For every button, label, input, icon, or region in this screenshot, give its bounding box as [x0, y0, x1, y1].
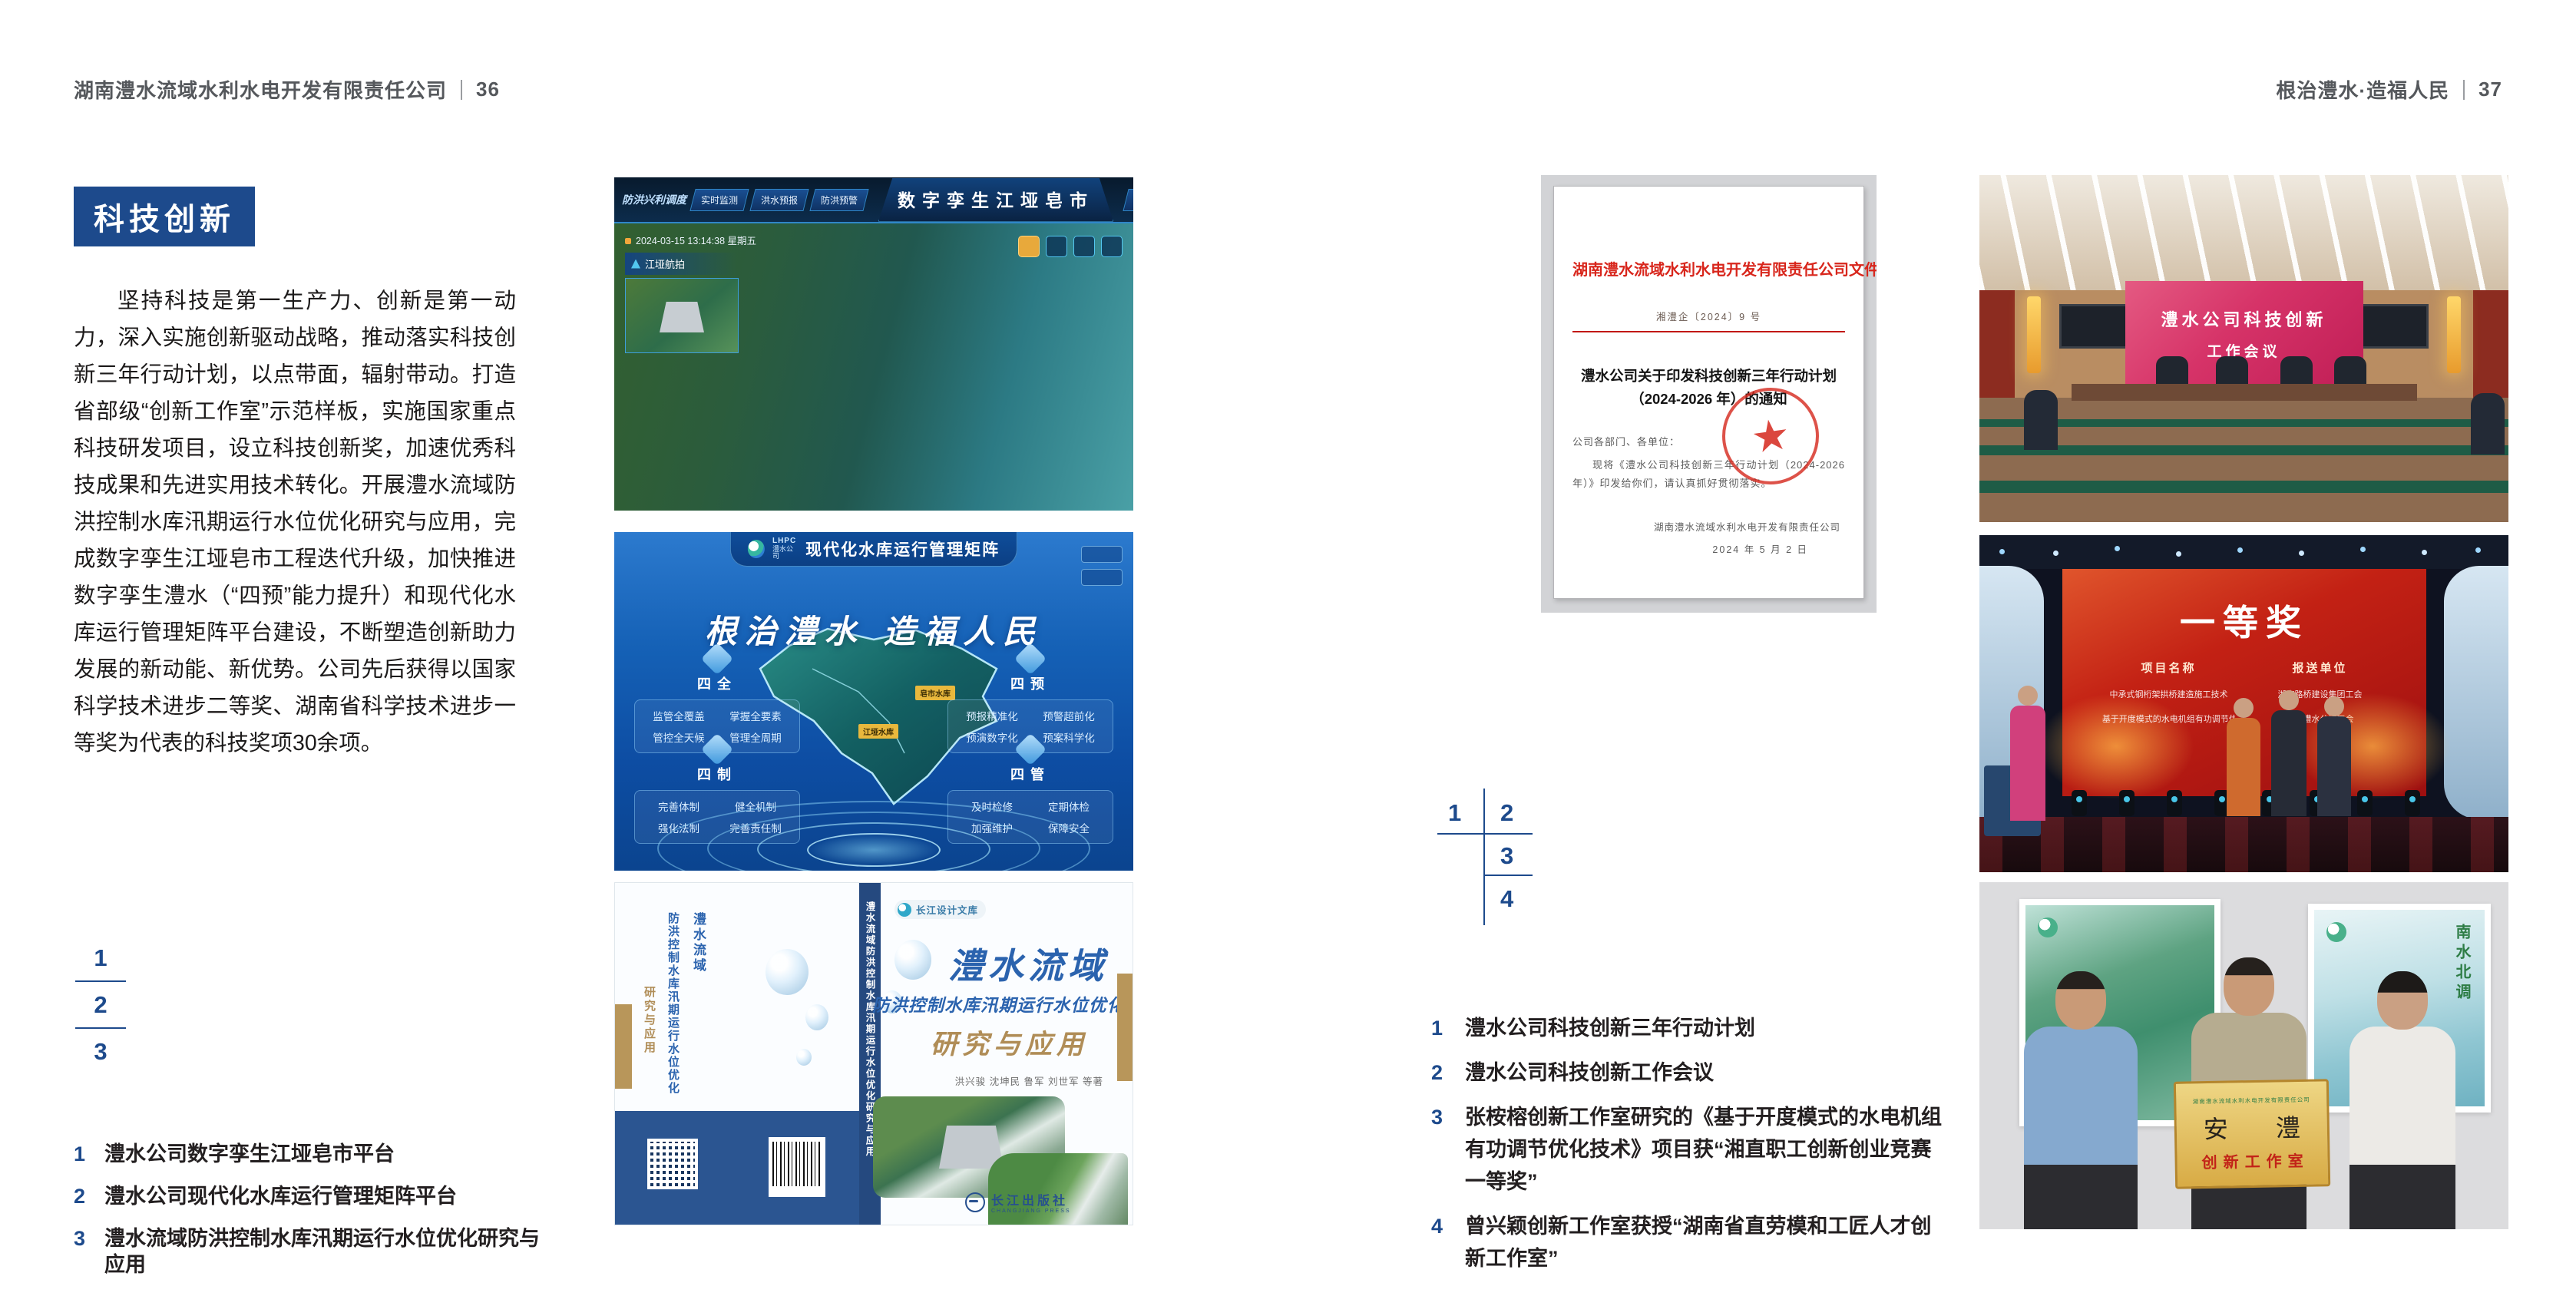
caption-number: 3: [1431, 1101, 1448, 1133]
matrix-button: [1081, 569, 1123, 586]
publisher-logo-icon: [965, 1192, 985, 1212]
panel-icon: [631, 260, 640, 269]
matrix-header: LHPC澧水公司 现代化水库运行管理矩阵: [730, 532, 1017, 567]
wall-lamp: [2447, 296, 2461, 373]
lhpc-logo-icon: [2038, 918, 2058, 937]
caption-number: 4: [1431, 1210, 1448, 1242]
person-silhouette: [2024, 1027, 2138, 1229]
series-logo: 长江设计文库: [894, 900, 986, 919]
twin-tab: 实时监测: [689, 189, 749, 211]
figure-meeting-photo: 澧水公司科技创新 工作会议: [1979, 175, 2508, 522]
water-droplet: [796, 1049, 812, 1066]
twin-menu-label: 防洪兴利调度: [622, 192, 686, 207]
speaker-silhouette: [2334, 356, 2366, 387]
gold-tab: [1117, 974, 1133, 1081]
brochure-spread: 湖南澧水流域水利水电开发有限责任公司 36 根治澧水·造福人民 37 科技创新 …: [0, 0, 2576, 1306]
map-label-jiangya: 江垭水库: [858, 724, 898, 739]
attendee-silhouette: [2471, 393, 2505, 455]
figure-index-number: 3: [94, 1040, 107, 1063]
figure-index-divider: [75, 1027, 126, 1029]
winner-silhouette: [2271, 710, 2306, 816]
caption-number: 3: [74, 1225, 91, 1278]
diamond-icon: [1014, 643, 1047, 675]
back-cover-titles: 研究与应用 防洪控制水库汛期运行水位优化 澧水流域: [641, 912, 708, 1095]
locate-icon: [1073, 236, 1095, 257]
notice-doc-number: 湘澧企〔2024〕9 号: [1572, 309, 1845, 323]
wall-lamp: [2027, 296, 2041, 373]
qr-code: [647, 1139, 698, 1189]
floor-light: [2167, 790, 2182, 816]
twin-tab: 风险预判: [1123, 189, 1133, 211]
back-cover-band: [615, 1111, 859, 1225]
caption-text: 曾兴颖创新工作室获授“湖南省直劳模和工匠人才创新工作室”: [1465, 1215, 1932, 1270]
section-body-paragraph: 坚持科技是第一生产力、创新是第一动力，深入实施创新驱动战略，推动落实科技创新三年…: [74, 283, 516, 762]
plaque-name: 安 澧: [2183, 1108, 2320, 1146]
captions-left: 1 澧水公司数字孪生江垭皂市平台 2 澧水公司现代化水库运行管理矩阵平台 3 澧…: [74, 1141, 550, 1294]
company-name: 湖南澧水流域水利水电开发有限责任公司: [74, 75, 447, 104]
figure-matrix-platform: 江垭水库 皂市水库 LHPC澧水公司 现代化水库运行管理矩阵 根治澧水 造福人民…: [614, 532, 1133, 871]
series-logo-icon: [898, 903, 911, 917]
twin-top-bar: 防洪兴利调度 实时监测 洪水预报 防洪预警 数字孪生江垭皂市 风险预判 预案生成…: [614, 177, 1133, 223]
book-subtitle: 防洪控制水库汛期运行水位优化: [872, 992, 1125, 1017]
header-divider: [461, 80, 462, 100]
floor-light: [2357, 790, 2373, 816]
wall-panel: [1979, 290, 2015, 398]
figure-official-notice: 湖南澧水流域水利水电开发有限责任公司文件 湘澧企〔2024〕9 号 澧水公司关于…: [1541, 175, 1877, 613]
conference-table: [1979, 419, 2508, 427]
notice-date: 2024 年 5 月 2 日: [1572, 541, 1845, 556]
book-title: 澧水流域: [948, 938, 1108, 989]
meeting-ceiling: [1979, 175, 2508, 290]
matrix-button: [1081, 546, 1123, 563]
twin-tab: 洪水预报: [749, 189, 809, 211]
twin-dam-thumbnail: [625, 278, 739, 353]
caption-row: 3 澧水流域防洪控制水库汛期运行水位优化研究与应用: [74, 1225, 550, 1278]
caption-number: 2: [1431, 1056, 1448, 1089]
captions-right: 1 澧水公司科技创新三年行动计划 2 澧水公司科技创新工作会议 3 张桉榕创新工…: [1430, 1012, 1944, 1287]
twin-panel-title: 江垭航拍: [645, 256, 685, 271]
winner-silhouette: [2227, 718, 2260, 816]
page-number-left: 36: [476, 78, 500, 101]
caption-number: 2: [74, 1183, 91, 1209]
layers-icon: [1046, 236, 1067, 257]
running-head-right: 根治澧水·造福人民 37: [2276, 75, 2502, 104]
figure-index-divider: [75, 980, 126, 982]
twin-panel-header: 江垭航拍: [625, 253, 737, 275]
caption-row: 1 澧水公司数字孪生江垭皂市平台: [74, 1141, 550, 1167]
stage-floor: [1979, 817, 2508, 872]
matrix-panel-sizhi: 四制 完善体制健全机制 强化法制完善责任制: [634, 738, 800, 844]
book-back-cover: 研究与应用 防洪控制水库汛期运行水位优化 澧水流域: [615, 883, 859, 1225]
figure-award-ceremony-photo: 一等奖 项目名称 中承式钢桁架拱桥建造施工技术 基于开度模式的水电机组有功调节优…: [1979, 535, 2508, 872]
figure-index-number: 2: [94, 993, 107, 1017]
wall-tv: [2358, 304, 2429, 349]
caption-text: 澧水公司科技创新三年行动计划: [1465, 1017, 1755, 1040]
isbn-barcode: [769, 1137, 825, 1197]
caption-row: 2 澧水公司科技创新工作会议: [1430, 1056, 1944, 1089]
book-front-cover: 长江设计文库 澧水流域 防洪控制水库汛期运行水位优化 研究与应用 洪兴骏 沈坤民…: [881, 883, 1133, 1225]
figure-index-number: 1: [94, 946, 107, 970]
attendee-silhouette: [2024, 390, 2058, 450]
caption-text: 澧水公司数字孪生江垭皂市平台: [104, 1141, 395, 1167]
conference-table: [1979, 445, 2508, 455]
stage-lights: [1999, 549, 2005, 554]
gold-tab: [615, 1004, 632, 1089]
caption-row: 2 澧水公司现代化水库运行管理矩阵平台: [74, 1183, 550, 1209]
stage-truss: [1979, 535, 2508, 569]
lhpc-logo-icon: [748, 540, 765, 558]
caption-number: 1: [74, 1141, 91, 1167]
award-heading: 一等奖: [2062, 595, 2426, 646]
book-authors: 洪兴骏 沈坤民 鲁军 刘世军 等著: [955, 1073, 1103, 1088]
running-head-left: 湖南澧水流域水利水电开发有限责任公司 36: [74, 75, 500, 104]
wall-panel: [2473, 290, 2508, 398]
figure-index-left: 1 2 3: [75, 946, 126, 1063]
water-droplet: [766, 949, 809, 995]
caption-text: 澧水公司科技创新工作会议: [1465, 1061, 1714, 1084]
header-divider: [2463, 80, 2465, 100]
book-title-tail: 研究与应用: [931, 1023, 1088, 1062]
diamond-icon: [701, 733, 733, 765]
page-number-right: 37: [2478, 78, 2502, 101]
wall-tv: [2059, 304, 2130, 349]
notice-red-header: 湖南澧水流域水利水电开发有限责任公司文件: [1572, 257, 1845, 279]
notice-red-rule: [1572, 331, 1845, 332]
twin-timestamp: 2024-03-15 13:14:38 星期五: [625, 233, 756, 247]
figure-studio-photo: 南水北调 湖南澧水流域水利水电开发有限责任公司 安 澧 创新工作室: [1979, 882, 2508, 1229]
speaker-silhouette: [2216, 356, 2248, 387]
water-droplet: [805, 1004, 828, 1030]
settings-icon: [1101, 236, 1123, 257]
winner-silhouette: [2317, 716, 2351, 816]
lhpc-logo-text: LHPC澧水公司: [772, 537, 798, 560]
slogan-text: 根治澧水·造福人民: [2276, 75, 2449, 104]
caption-number: 1: [1431, 1012, 1448, 1044]
studio-plaque: 湖南澧水流域水利水电开发有限责任公司 安 澧 创新工作室: [2174, 1079, 2330, 1189]
notice-sheet: 湖南澧水流域水利水电开发有限责任公司文件 湘澧企〔2024〕9 号 澧水公司关于…: [1553, 186, 1864, 599]
figure-index-number: 3: [1500, 844, 1513, 868]
figure-book-cover: 研究与应用 防洪控制水库汛期运行水位优化 澧水流域 澧水流域防洪控制水库汛期运行…: [614, 882, 1133, 1225]
plaque-org-line: 湖南澧水流域水利水电开发有限责任公司: [2193, 1096, 2310, 1106]
power-station-photo: [988, 1153, 1128, 1225]
figure-digital-twin-platform: 防洪兴利调度 实时监测 洪水预报 防洪预警 数字孪生江垭皂市 风险预判 预案生成…: [614, 177, 1133, 511]
diamond-icon: [1014, 733, 1047, 765]
caption-row: 4 曾兴颖创新工作室获授“湖南省直劳模和工匠人才创新工作室”: [1430, 1210, 1944, 1275]
figure-index-number: 2: [1500, 801, 1513, 825]
twin-tab: 防洪预警: [809, 189, 868, 211]
floor-light: [2072, 790, 2087, 816]
person-silhouette: [2349, 1027, 2455, 1229]
publisher-block: 长江出版社CHANGJIANG PRESS: [965, 1190, 1071, 1214]
poster-calligraphy: 南水北调: [2452, 924, 2474, 1003]
caption-text: 张桉榕创新工作室研究的《基于开度模式的水电机组有功调节优化技术》项目获“湘直职工…: [1465, 1106, 1942, 1193]
speaker-silhouette: [2280, 356, 2313, 387]
diamond-icon: [701, 643, 733, 675]
user-icon: [1018, 236, 1040, 257]
caption-row: 3 张桉榕创新工作室研究的《基于开度模式的水电机组有功调节优化技术》项目获“湘直…: [1430, 1101, 1944, 1198]
twin-left-panel: 江垭航拍: [625, 253, 737, 353]
host-silhouette: [2010, 706, 2045, 821]
section-badge: 科技创新: [74, 187, 255, 246]
award-project-column: 项目名称 中承式钢桁架拱桥建造施工技术 基于开度模式的水电机组有功调节优化技术: [2102, 660, 2235, 737]
figure-index-divider: [1483, 875, 1533, 876]
twin-toolbar-icons: [1018, 236, 1123, 257]
figure-index-right: 1 2 3 4: [1437, 789, 1533, 925]
floor-light: [2405, 790, 2420, 816]
matrix-title: 现代化水库运行管理矩阵: [805, 537, 1000, 560]
star-icon: ★: [1748, 412, 1793, 460]
floor-light: [2119, 790, 2135, 816]
figure-index-divider: [1483, 789, 1485, 925]
matrix-slogan: 根治澧水 造福人民: [614, 606, 1133, 653]
conference-table: [1979, 481, 2508, 493]
figure-index-number: 4: [1500, 887, 1513, 911]
matrix-panel-siguan: 四管 及时检修定期体检 加强维护保障安全: [947, 738, 1113, 844]
figure-index-divider: [1437, 833, 1533, 835]
caption-text: 澧水公司现代化水库运行管理矩阵平台: [104, 1183, 457, 1209]
lhpc-logo-icon: [2326, 922, 2346, 942]
plaque-title: 创新工作室: [2195, 1149, 2309, 1173]
head-table: [2072, 384, 2417, 401]
dam-shape: [660, 302, 704, 332]
water-droplet: [894, 940, 931, 980]
twin-title-plate: 数字孪生江垭皂市: [878, 178, 1113, 222]
caption-text: 澧水流域防洪控制水库汛期运行水位优化研究与应用: [104, 1225, 550, 1278]
caption-row: 1 澧水公司科技创新三年行动计划: [1430, 1012, 1944, 1044]
speaker-silhouette: [2156, 356, 2188, 387]
figure-index-number: 1: [1448, 801, 1461, 825]
notice-signature: 湖南澧水流域水利水电开发有限责任公司: [1572, 519, 1845, 534]
